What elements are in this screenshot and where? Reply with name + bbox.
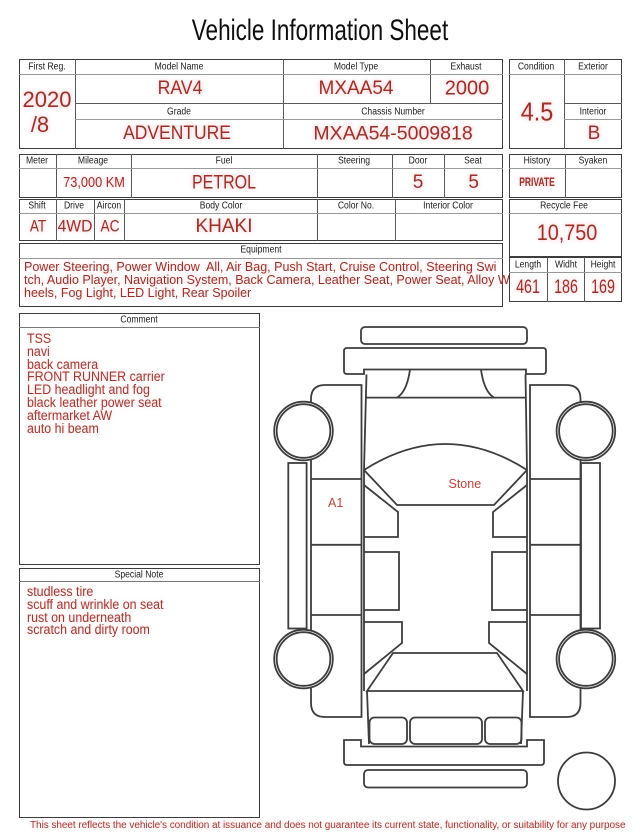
svg-text:Stone: Stone xyxy=(449,477,482,491)
svg-text:A1: A1 xyxy=(328,496,343,510)
